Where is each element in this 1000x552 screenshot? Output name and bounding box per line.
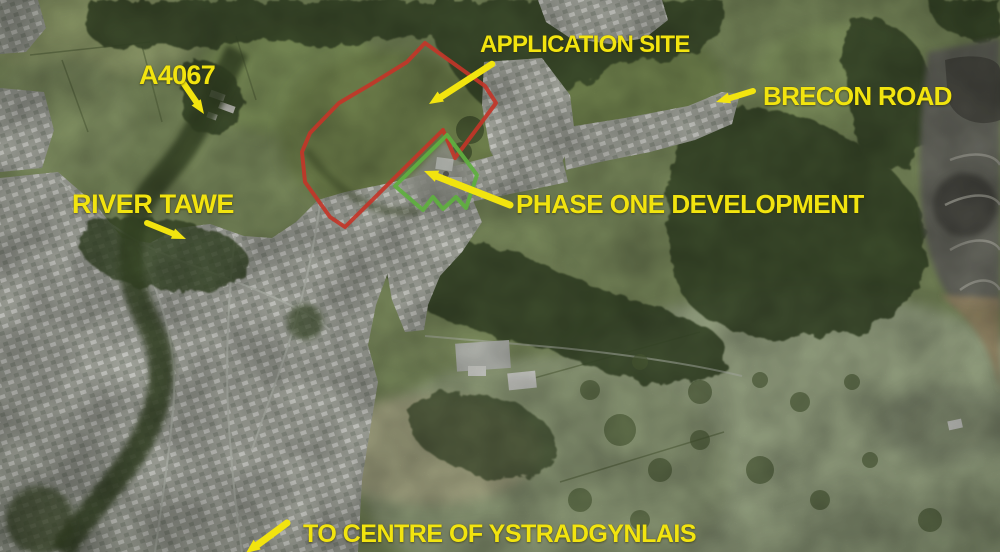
label-application-site: APPLICATION SITE — [480, 33, 690, 57]
aerial-map: APPLICATION SITE A4067 BRECON ROAD RIVER… — [0, 0, 1000, 552]
label-to-centre-of-ystradgynlais: TO CENTRE OF YSTRADGYNLAIS — [303, 522, 696, 547]
label-phase-one-development: PHASE ONE DEVELOPMENT — [516, 191, 864, 217]
label-river-tawe: RIVER TAWE — [72, 191, 234, 218]
label-a4067: A4067 — [139, 62, 215, 89]
label-brecon-road: BRECON ROAD — [763, 83, 952, 109]
